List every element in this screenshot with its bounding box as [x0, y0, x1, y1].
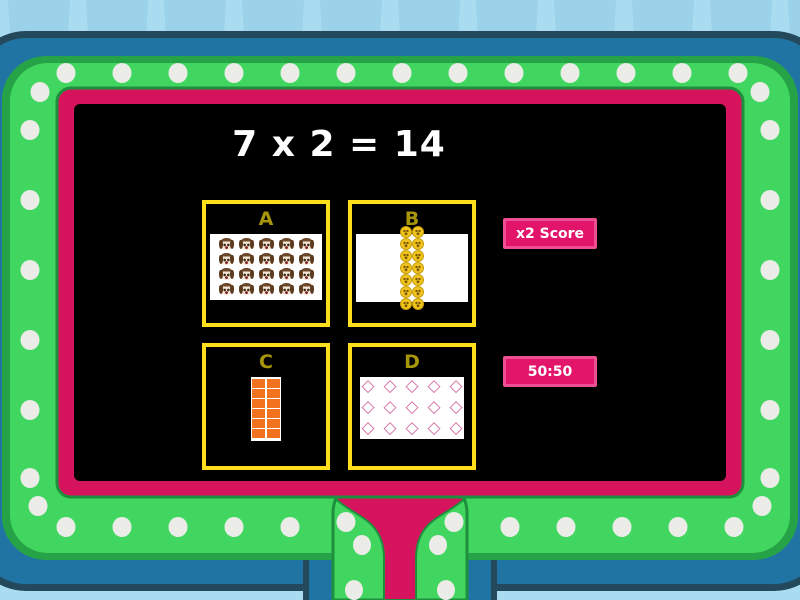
dog-face-emoji	[220, 238, 233, 250]
orange-square	[267, 389, 280, 398]
dog-face-emoji	[260, 283, 273, 295]
option-image-dog-grid	[210, 234, 322, 300]
orange-square	[267, 379, 280, 388]
smiley-grid	[401, 226, 423, 310]
diamond-outline: ◇	[449, 378, 463, 395]
smiley-emoji	[413, 239, 423, 249]
diamond-outline: ◇	[405, 399, 419, 416]
orange-square-grid	[252, 379, 280, 438]
option-image-smiley-columns	[356, 234, 468, 302]
dog-face-emoji	[240, 253, 253, 265]
diamond-outline: ◇	[427, 399, 441, 416]
orange-square	[252, 409, 265, 418]
diamond-outline: ◇	[361, 399, 375, 416]
dog-face-emoji	[220, 283, 233, 295]
dog-face-emoji	[260, 268, 273, 280]
diamond-outline: ◇	[405, 420, 419, 437]
diamond-outline: ◇	[361, 420, 375, 437]
dog-face-emoji	[300, 253, 313, 265]
orange-square	[252, 399, 265, 408]
diamond-outline: ◇	[427, 378, 441, 395]
dog-face-emoji	[280, 283, 293, 295]
x2-score-button[interactable]: x2 Score	[503, 218, 597, 249]
smiley-emoji	[413, 251, 423, 261]
fifty-fifty-button[interactable]: 50:50	[503, 356, 597, 387]
orange-square	[252, 379, 265, 388]
answer-option-a[interactable]: A	[202, 200, 330, 327]
orange-square	[252, 429, 265, 438]
smiley-emoji	[401, 263, 411, 273]
diamond-outline: ◇	[383, 420, 397, 437]
answer-option-b[interactable]: B	[348, 200, 476, 327]
smiley-emoji	[401, 299, 411, 309]
smiley-emoji	[413, 263, 423, 273]
dog-face-emoji	[300, 283, 313, 295]
dog-face-emoji	[240, 268, 253, 280]
option-letter: D	[404, 351, 420, 374]
dog-face-emoji	[280, 253, 293, 265]
smiley-emoji	[401, 227, 411, 237]
dog-face-emoji	[280, 268, 293, 280]
orange-square	[252, 389, 265, 398]
dog-face-emoji	[300, 268, 313, 280]
diamond-outline: ◇	[449, 420, 463, 437]
smiley-emoji	[401, 251, 411, 261]
dog-face-emoji	[240, 283, 253, 295]
answer-option-d[interactable]: D ◇◇◇◇◇◇◇◇◇◇◇◇◇◇◇	[348, 343, 476, 470]
orange-square	[267, 399, 280, 408]
option-letter: A	[259, 208, 274, 231]
diamond-outline: ◇	[383, 378, 397, 395]
dog-face-emoji	[220, 253, 233, 265]
diamond-outline: ◇	[427, 420, 441, 437]
orange-square	[267, 419, 280, 428]
dog-face-emoji	[280, 238, 293, 250]
diamond-grid: ◇◇◇◇◇◇◇◇◇◇◇◇◇◇◇	[361, 378, 463, 437]
smiley-emoji	[401, 287, 411, 297]
dog-face-grid	[220, 238, 313, 295]
dog-face-emoji	[260, 253, 273, 265]
smiley-emoji	[401, 239, 411, 249]
orange-square	[267, 409, 280, 418]
smiley-emoji	[401, 275, 411, 285]
dog-face-emoji	[240, 238, 253, 250]
diamond-outline: ◇	[383, 399, 397, 416]
orange-square	[267, 429, 280, 438]
option-image-diamond-grid: ◇◇◇◇◇◇◇◇◇◇◇◇◇◇◇	[360, 377, 464, 439]
orange-square	[252, 419, 265, 428]
smiley-emoji	[413, 227, 423, 237]
dog-face-emoji	[300, 238, 313, 250]
diamond-outline: ◇	[449, 399, 463, 416]
smiley-emoji	[413, 299, 423, 309]
dog-face-emoji	[220, 268, 233, 280]
diamond-outline: ◇	[361, 378, 375, 395]
smiley-emoji	[413, 275, 423, 285]
question-text: 7 x 2 = 14	[75, 124, 603, 165]
dog-face-emoji	[260, 238, 273, 250]
diamond-outline: ◇	[405, 378, 419, 395]
option-image-square-tower	[251, 377, 281, 441]
smiley-emoji	[413, 287, 423, 297]
answer-option-c[interactable]: C	[202, 343, 330, 470]
option-letter: C	[259, 351, 273, 374]
